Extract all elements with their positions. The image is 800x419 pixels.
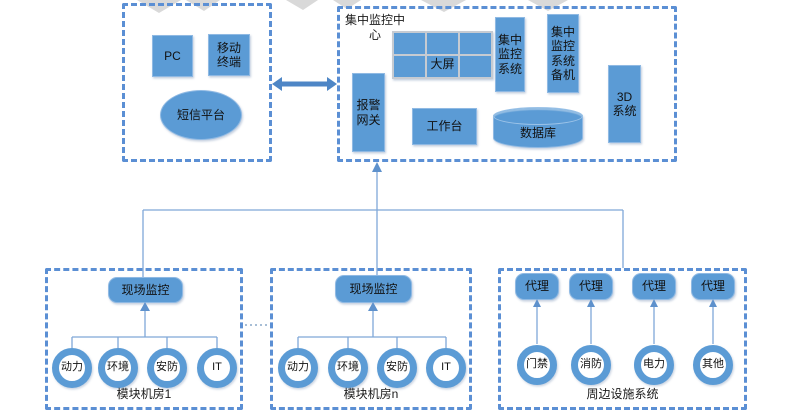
monitoring-system-node: 集中监控系统 bbox=[495, 17, 525, 92]
architecture-diagram: PC 移动终端 短信平台 集中监控中心 报警网关 大屏 工作台 集中监控系统 集… bbox=[0, 0, 800, 419]
monitoring-center-group: 集中监控中心 报警网关 大屏 工作台 集中监控系统 集中监控系统备机 数据库 3… bbox=[337, 6, 677, 162]
agent-node: 代理 bbox=[569, 273, 613, 300]
sms-platform-node: 短信平台 bbox=[160, 90, 242, 140]
3d-system-node: 3D系统 bbox=[608, 65, 641, 143]
pc-node: PC bbox=[152, 35, 193, 77]
alarm-gateway-node: 报警网关 bbox=[352, 73, 385, 152]
access-control-node: 门禁 bbox=[517, 345, 557, 385]
it-node: IT bbox=[197, 348, 237, 388]
module-room-1-group: 现场监控 动力 环境 安防 IT 模块机房1 bbox=[45, 268, 243, 410]
environment-node: 环境 bbox=[328, 348, 368, 388]
security-node: 安防 bbox=[377, 348, 417, 388]
workbench-node: 工作台 bbox=[412, 108, 477, 145]
electric-power-node: 电力 bbox=[634, 345, 674, 385]
power-node: 动力 bbox=[52, 348, 92, 388]
power-node: 动力 bbox=[278, 348, 318, 388]
mobile-terminal-node: 移动终端 bbox=[208, 34, 250, 76]
clients-group: PC 移动终端 短信平台 bbox=[122, 3, 272, 162]
it-node: IT bbox=[426, 348, 466, 388]
onsite-monitoring-node: 现场监控 bbox=[335, 275, 412, 303]
database-node: 数据库 bbox=[493, 107, 583, 148]
fire-protection-node: 消防 bbox=[571, 345, 611, 385]
security-node: 安防 bbox=[147, 348, 187, 388]
database-top bbox=[493, 107, 583, 125]
big-screen-label: 大屏 bbox=[394, 55, 491, 72]
agent-node: 代理 bbox=[632, 273, 676, 300]
monitoring-center-title: 集中监控中心 bbox=[341, 13, 409, 43]
environment-node: 环境 bbox=[98, 348, 138, 388]
module-room-n-group: 现场监控 动力 环境 安防 IT 模块机房n bbox=[270, 268, 472, 410]
other-node: 其他 bbox=[693, 345, 733, 385]
agent-node: 代理 bbox=[515, 273, 559, 300]
module-room-n-label: 模块机房n bbox=[273, 385, 469, 402]
module-room-1-label: 模块机房1 bbox=[48, 385, 240, 402]
monitoring-backup-node: 集中监控系统备机 bbox=[547, 14, 579, 93]
screen-cell bbox=[460, 33, 491, 54]
database-label: 数据库 bbox=[493, 124, 583, 141]
agent-node: 代理 bbox=[691, 273, 735, 300]
screen-cell bbox=[427, 33, 458, 54]
peripheral-label: 周边设施系统 bbox=[501, 385, 744, 402]
onsite-monitoring-node: 现场监控 bbox=[108, 277, 183, 303]
peripheral-group: 代理 代理 代理 代理 门禁 消防 电力 其他 周边设施系统 bbox=[498, 268, 747, 410]
